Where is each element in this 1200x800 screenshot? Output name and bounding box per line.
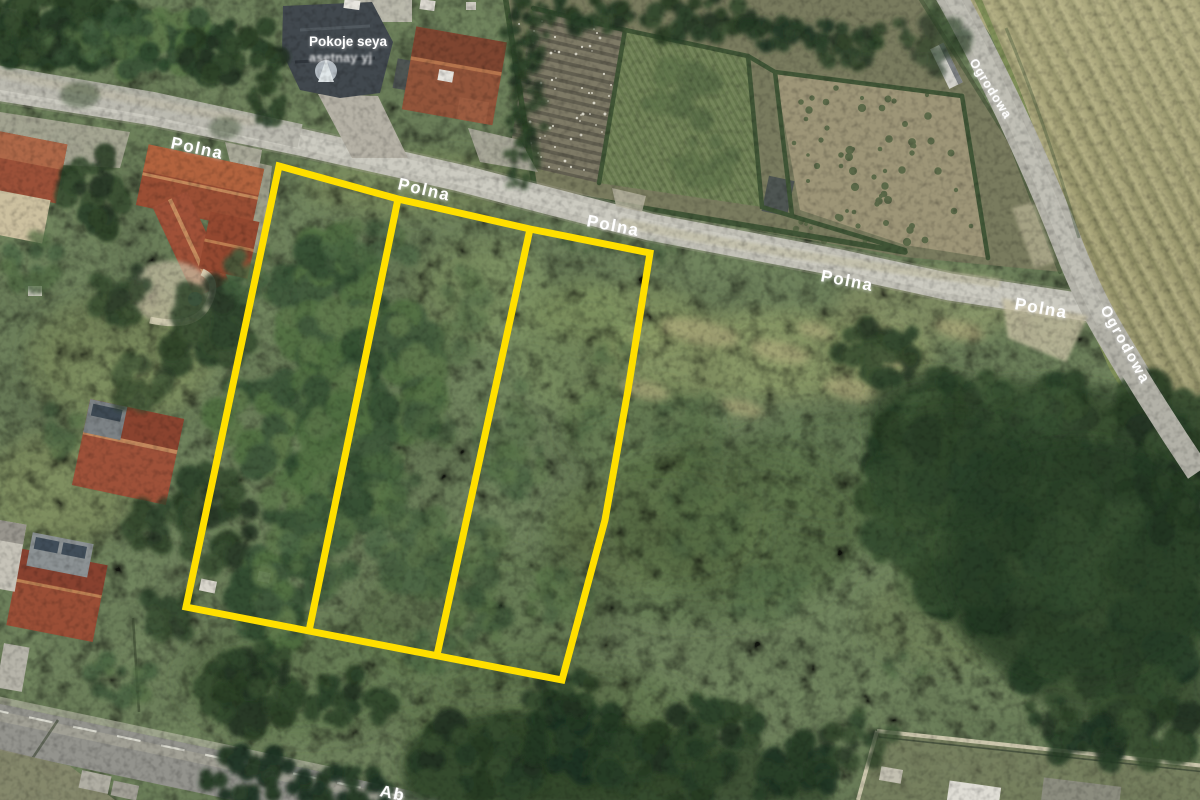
svg-text:Pokoje seya: Pokoje seya [309,34,388,49]
svg-text:asetnay yj: asetnay yj [309,51,372,65]
